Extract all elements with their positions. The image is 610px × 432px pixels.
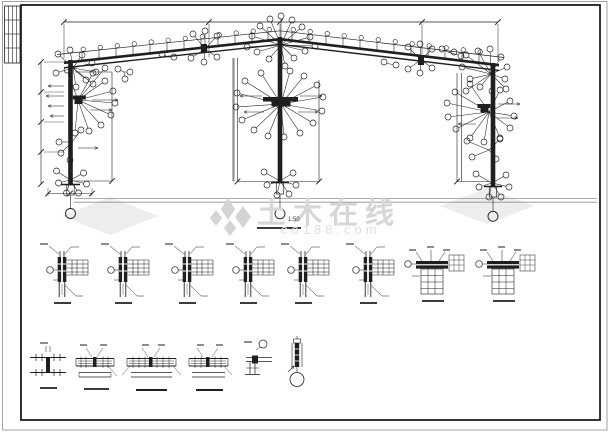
callout-circle [504, 64, 510, 70]
leader-line [281, 104, 298, 130]
purlin-callout [149, 40, 153, 44]
callout-circle [108, 112, 114, 118]
purlin-callout [461, 48, 465, 52]
purlin-dot [115, 56, 117, 58]
cad-line [256, 347, 260, 350]
steel-member [364, 257, 367, 282]
callout-circle [405, 261, 412, 268]
cad-rect [421, 269, 443, 294]
callout-circle [214, 54, 220, 60]
tiny-annotation [80, 344, 87, 346]
purlin-dot [308, 41, 310, 43]
callout-circle [127, 69, 133, 75]
purlin-dot [166, 50, 168, 52]
purlin-callout [166, 38, 170, 42]
leader-line [75, 100, 78, 130]
purlin-callout [200, 34, 204, 38]
callout-circle [476, 184, 482, 190]
purlin-callout [393, 40, 397, 44]
cad-line [439, 252, 445, 261]
leader-line [458, 94, 489, 112]
callout-circle [319, 108, 325, 114]
callout-circle [476, 261, 483, 268]
steel-member [119, 257, 122, 282]
callout-circle [264, 182, 270, 188]
purlin-dot [149, 52, 151, 54]
callout-circle [459, 64, 465, 70]
callout-circle [429, 65, 435, 71]
purlin-dot [461, 60, 463, 62]
watermark-faint-shape [62, 197, 158, 235]
cad-line [190, 247, 196, 254]
callout-circle [503, 86, 509, 92]
purlin-dot [427, 56, 429, 58]
callout-circle [56, 139, 62, 145]
callout-circle [102, 65, 108, 71]
tiny-annotation [40, 243, 48, 245]
cad-line [371, 247, 377, 254]
steel-member [304, 257, 307, 282]
purlin-dot [291, 39, 293, 41]
leader-line [470, 142, 489, 150]
cad-line [416, 252, 422, 261]
cad-line [49, 246, 59, 254]
cad-line [487, 252, 493, 261]
callout-circle [481, 139, 487, 145]
callout-circle [445, 114, 451, 120]
tiny-annotation [480, 249, 487, 251]
purlin-callout [132, 42, 136, 46]
callout-circle [353, 267, 360, 274]
purlin-dot [81, 60, 83, 62]
cad-rect [294, 339, 301, 343]
callout-circle [122, 76, 128, 82]
purlin-dot [98, 58, 100, 60]
callout-circle [81, 170, 87, 176]
cad-line [154, 348, 160, 357]
purlin-callout [183, 36, 187, 40]
callout-circle [67, 47, 73, 53]
steel-member [416, 265, 448, 268]
cad-line [65, 285, 76, 296]
callout-circle [477, 84, 483, 90]
cad-line [355, 246, 365, 254]
tiny-annotation [197, 344, 204, 346]
callout-circle [265, 133, 271, 139]
purlin-callout [267, 27, 271, 31]
leader-line [387, 63, 390, 64]
callout-circle [251, 127, 257, 133]
callout-circle [266, 56, 272, 62]
leader-line [256, 104, 281, 128]
purlin-callout [234, 31, 238, 35]
callout-circle [405, 66, 411, 72]
callout-circle [190, 31, 196, 37]
callout-circle [115, 66, 121, 72]
cad-line [174, 246, 184, 254]
steel-member [188, 257, 191, 282]
callout-circle [405, 44, 411, 50]
leader-line [73, 68, 76, 84]
callout-circle [310, 120, 316, 126]
callout-circle [78, 127, 84, 133]
tiny-annotation [244, 341, 252, 343]
purlin-dot [251, 41, 253, 43]
callout-circle [301, 73, 307, 79]
callout-circle [257, 23, 263, 29]
tiny-annotation [346, 243, 354, 245]
callout-circle [201, 59, 207, 65]
callout-circle [278, 13, 284, 19]
callout-circle [172, 267, 179, 274]
cad-line [251, 285, 262, 296]
tiny-annotation [427, 246, 434, 248]
tiny-annotation [443, 249, 450, 251]
steel-member [63, 257, 66, 282]
leader-line [72, 132, 79, 142]
callout-circle [381, 59, 387, 65]
grid-bubble [290, 373, 304, 387]
callout-circle [86, 128, 92, 134]
cad-line [126, 285, 137, 296]
grid-bubble [259, 340, 267, 348]
callout-circle [110, 88, 116, 94]
callout-circle [84, 181, 90, 187]
cad-rect [492, 269, 514, 294]
steel-member [487, 265, 519, 268]
cad-line [290, 246, 300, 254]
leader-line [459, 112, 489, 128]
tiny-annotation [409, 249, 416, 251]
leader-line [479, 175, 492, 183]
watermark-faint-shape [440, 188, 534, 224]
leader-line [262, 28, 281, 45]
cad-sheet: 土木在线 co188.com 1:50 [0, 0, 610, 432]
callout-circle [302, 48, 308, 54]
callout-circle [188, 55, 194, 61]
purlin-dot [342, 45, 344, 47]
tiny-annotation [100, 344, 107, 346]
callout-circle [497, 87, 503, 93]
tiny-annotation [226, 243, 234, 245]
tiny-annotation [281, 243, 289, 245]
purlin-dot [393, 52, 395, 54]
callout-circle [234, 90, 240, 96]
callout-circle [244, 44, 250, 50]
callout-circle [233, 267, 240, 274]
cad-line [86, 348, 92, 357]
purlin-callout [115, 43, 119, 47]
leader-line [124, 72, 125, 76]
purlin-dot [234, 43, 236, 45]
callout-circle [267, 16, 273, 22]
callout-circle [76, 190, 82, 196]
cad-line [224, 366, 232, 375]
cad-line [65, 247, 71, 254]
leader-line [472, 86, 489, 112]
cad-line [64, 44, 280, 67]
leader-line [281, 23, 291, 45]
leader-line [78, 100, 99, 123]
purlin-dot [183, 48, 185, 50]
purlin-callout [376, 38, 380, 42]
cad-line [306, 247, 312, 254]
leader-line [271, 22, 281, 45]
callout-circle [297, 130, 303, 136]
callout-circle [444, 100, 450, 106]
tiny-annotation [142, 344, 149, 346]
cad-rect [520, 255, 535, 271]
purlin-callout [325, 31, 329, 35]
purlin-dot [444, 58, 446, 60]
callout-circle [293, 182, 299, 188]
callout-circle [242, 78, 248, 84]
callout-circle [393, 62, 399, 68]
purlin-dot [376, 50, 378, 52]
steel-member [58, 257, 61, 282]
callout-circle [288, 267, 295, 274]
callout-circle [290, 170, 296, 176]
cad-line [190, 285, 201, 296]
steel-member [46, 358, 50, 373]
callout-circle [98, 122, 104, 128]
callout-circle [254, 49, 260, 55]
cad-line [126, 247, 132, 254]
cad-line [212, 348, 218, 357]
callout-circle [287, 68, 293, 74]
callout-circle [171, 54, 177, 60]
leader-line [484, 112, 489, 139]
purlin-dot [478, 62, 480, 64]
callout-circle [239, 117, 245, 123]
tiny-annotation [101, 243, 109, 245]
leader-line [390, 64, 393, 65]
cad-line [122, 366, 130, 375]
purlin-dot [325, 43, 327, 45]
callout-circle [282, 63, 288, 69]
callout-circle [473, 171, 479, 177]
steel-member [369, 257, 372, 282]
callout-circle [58, 150, 64, 156]
callout-circle [487, 46, 493, 52]
purlin-callout [98, 45, 102, 49]
cad-line [110, 246, 120, 254]
steel-member [244, 257, 247, 282]
tiny-annotation [498, 246, 505, 248]
leader-line [121, 70, 124, 72]
cad-line [142, 348, 148, 357]
cad-line [306, 285, 317, 296]
callout-circle [463, 88, 469, 94]
callout-circle [47, 267, 54, 274]
purlin-dot [132, 54, 134, 56]
leader-line [73, 68, 91, 82]
cad-line [235, 246, 245, 254]
cad-rect [449, 255, 464, 271]
cad-line [251, 247, 257, 254]
leader-line [482, 183, 492, 186]
callout-circle [56, 180, 62, 186]
cad-line [108, 366, 117, 376]
steel-member [416, 261, 448, 264]
steel-member [487, 261, 519, 264]
cad-line [197, 348, 203, 357]
leader-line [78, 100, 88, 128]
tiny-annotation [158, 344, 165, 346]
leader-line [451, 112, 489, 117]
callout-circle [258, 70, 264, 76]
steel-member [299, 257, 302, 282]
purlin-callout [291, 27, 295, 31]
callout-circle [502, 76, 508, 82]
steel-member [278, 50, 283, 182]
callout-circle [54, 168, 60, 174]
callout-circle [503, 172, 509, 178]
cad-line [173, 366, 181, 375]
callout-circle [320, 94, 326, 100]
purlin-callout [359, 36, 363, 40]
tiny-annotation [216, 344, 223, 346]
steel-member [68, 60, 73, 184]
callout-circle [102, 78, 108, 84]
callout-circle [261, 169, 267, 175]
callout-circle [506, 184, 512, 190]
cad-line [510, 252, 516, 261]
callout-circle [202, 28, 208, 34]
cad-line [97, 348, 103, 357]
cad-line [371, 285, 382, 296]
purlin-dot [200, 47, 202, 49]
steel-member [249, 257, 252, 282]
purlin-callout [342, 34, 346, 38]
callout-circle [417, 70, 423, 76]
leader-line [475, 150, 489, 156]
steel-member [124, 257, 127, 282]
callout-circle [53, 70, 59, 76]
scale-label: 1:50 [288, 217, 300, 223]
purlin-dot [410, 54, 412, 56]
tiny-annotation [40, 342, 48, 344]
callout-circle [299, 24, 305, 30]
purlin-callout [308, 29, 312, 33]
callout-circle [108, 267, 115, 274]
purlin-dot [359, 47, 361, 49]
tiny-annotation [165, 243, 173, 245]
callout-circle [469, 154, 475, 160]
callout-circle [307, 34, 313, 40]
callout-circle [507, 125, 513, 131]
callout-circle [112, 100, 118, 106]
watermark-url: co188.com [281, 222, 381, 237]
purlin-callout [81, 47, 85, 51]
tiny-annotation [514, 249, 521, 251]
callout-circle [507, 98, 513, 104]
steel-member [183, 257, 186, 282]
purlin-dot [217, 45, 219, 47]
callout-circle [453, 126, 459, 132]
callout-circle [291, 55, 297, 61]
